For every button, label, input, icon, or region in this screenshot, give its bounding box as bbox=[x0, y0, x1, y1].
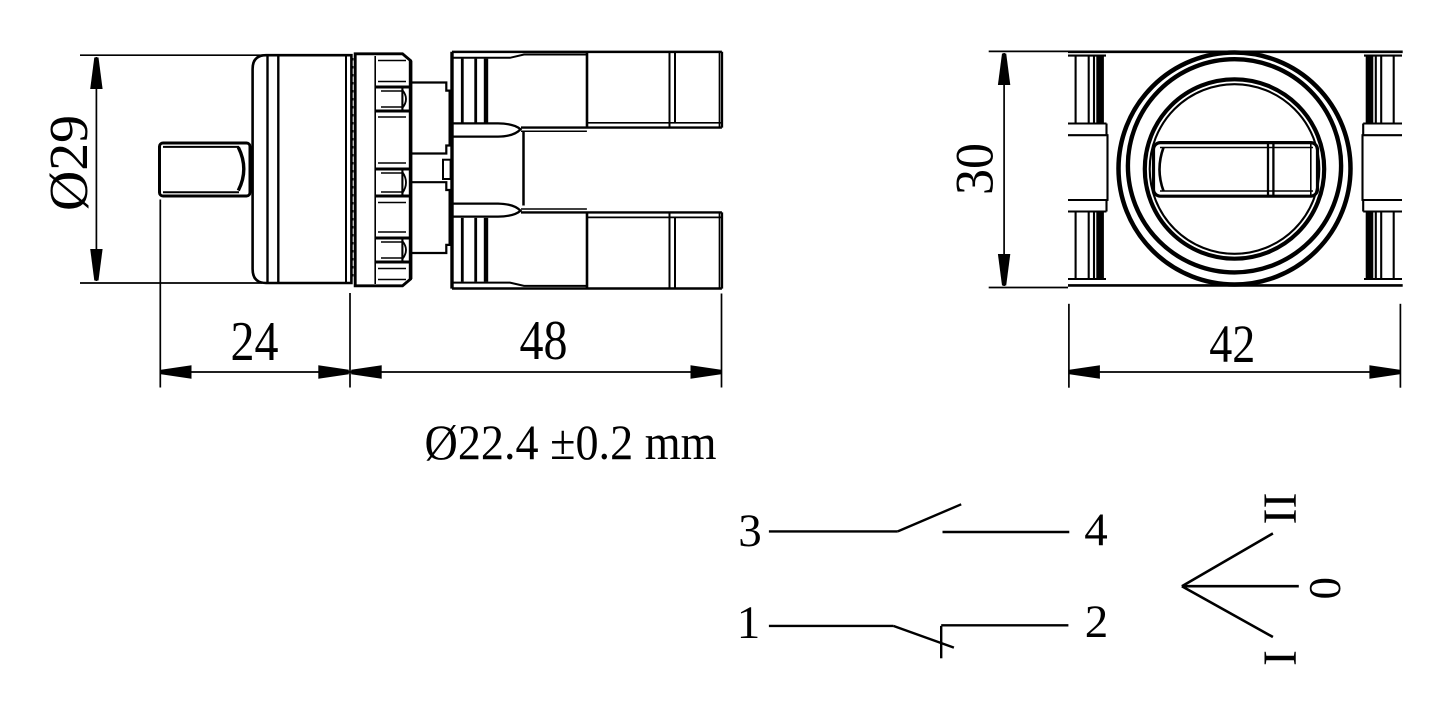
svg-text:I: I bbox=[1254, 650, 1307, 666]
svg-text:4: 4 bbox=[1084, 504, 1108, 556]
svg-text:3: 3 bbox=[738, 505, 762, 557]
svg-text:II: II bbox=[1254, 493, 1307, 525]
svg-text:Ø22.4 ±0.2 mm: Ø22.4 ±0.2 mm bbox=[425, 414, 717, 470]
svg-text:2: 2 bbox=[1085, 596, 1109, 648]
svg-text:Ø29: Ø29 bbox=[38, 115, 99, 211]
svg-text:1: 1 bbox=[737, 597, 761, 649]
svg-text:24: 24 bbox=[231, 311, 279, 373]
svg-text:42: 42 bbox=[1209, 314, 1255, 374]
svg-text:0: 0 bbox=[1300, 577, 1350, 600]
svg-text:48: 48 bbox=[520, 310, 568, 372]
svg-text:30: 30 bbox=[945, 143, 1005, 195]
